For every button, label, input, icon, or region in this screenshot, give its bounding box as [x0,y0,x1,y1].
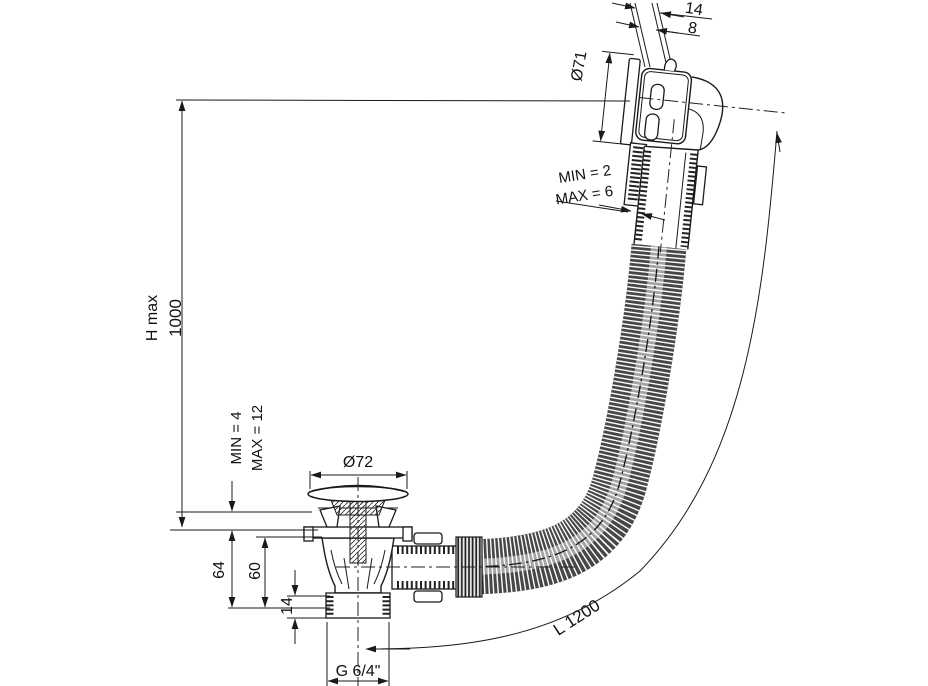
label-height-body-60: 60 [247,562,264,580]
label-height-max: H max [144,295,161,341]
technical-drawing-page: 14 8 Ø71 MIN = 2 MAX = 6 H max 1000 MIN … [0,0,928,686]
label-floor-clamp-min: MIN = 4 [228,412,245,465]
label-rim-width: 14 [684,0,704,19]
outlet-tab-top [414,533,442,544]
overflow-slot-lower [644,113,660,140]
outlet-tab-bottom [414,591,442,602]
label-height-value: 1000 [166,299,185,337]
label-overflow-clamp-max: MAX = 6 [554,183,614,209]
dim-rim14 [612,3,635,8]
hmax-extension-top [176,100,630,101]
label-thread-height-14: 14 [279,597,296,615]
corrugated-hose [462,246,659,567]
label-height-total-64: 64 [211,561,228,579]
label-waste-diameter: Ø72 [343,454,373,471]
label-thread-size: G 6/4" [336,663,381,680]
label-overflow-diameter: Ø71 [568,50,590,83]
overflow-clip [664,59,677,72]
label-floor-clamp-max: MAX = 12 [249,405,266,471]
label-hose-length: L 1200 [550,596,603,640]
overflow-slot-upper [649,84,665,110]
overflow-body-group [582,51,791,264]
label-rim-thickness: 8 [687,19,699,37]
overflow-housing [635,68,692,145]
overflow-fitting [582,3,791,264]
bath-waste-dimension-drawing: 14 8 Ø71 MIN = 2 MAX = 6 H max 1000 MIN … [0,0,928,686]
